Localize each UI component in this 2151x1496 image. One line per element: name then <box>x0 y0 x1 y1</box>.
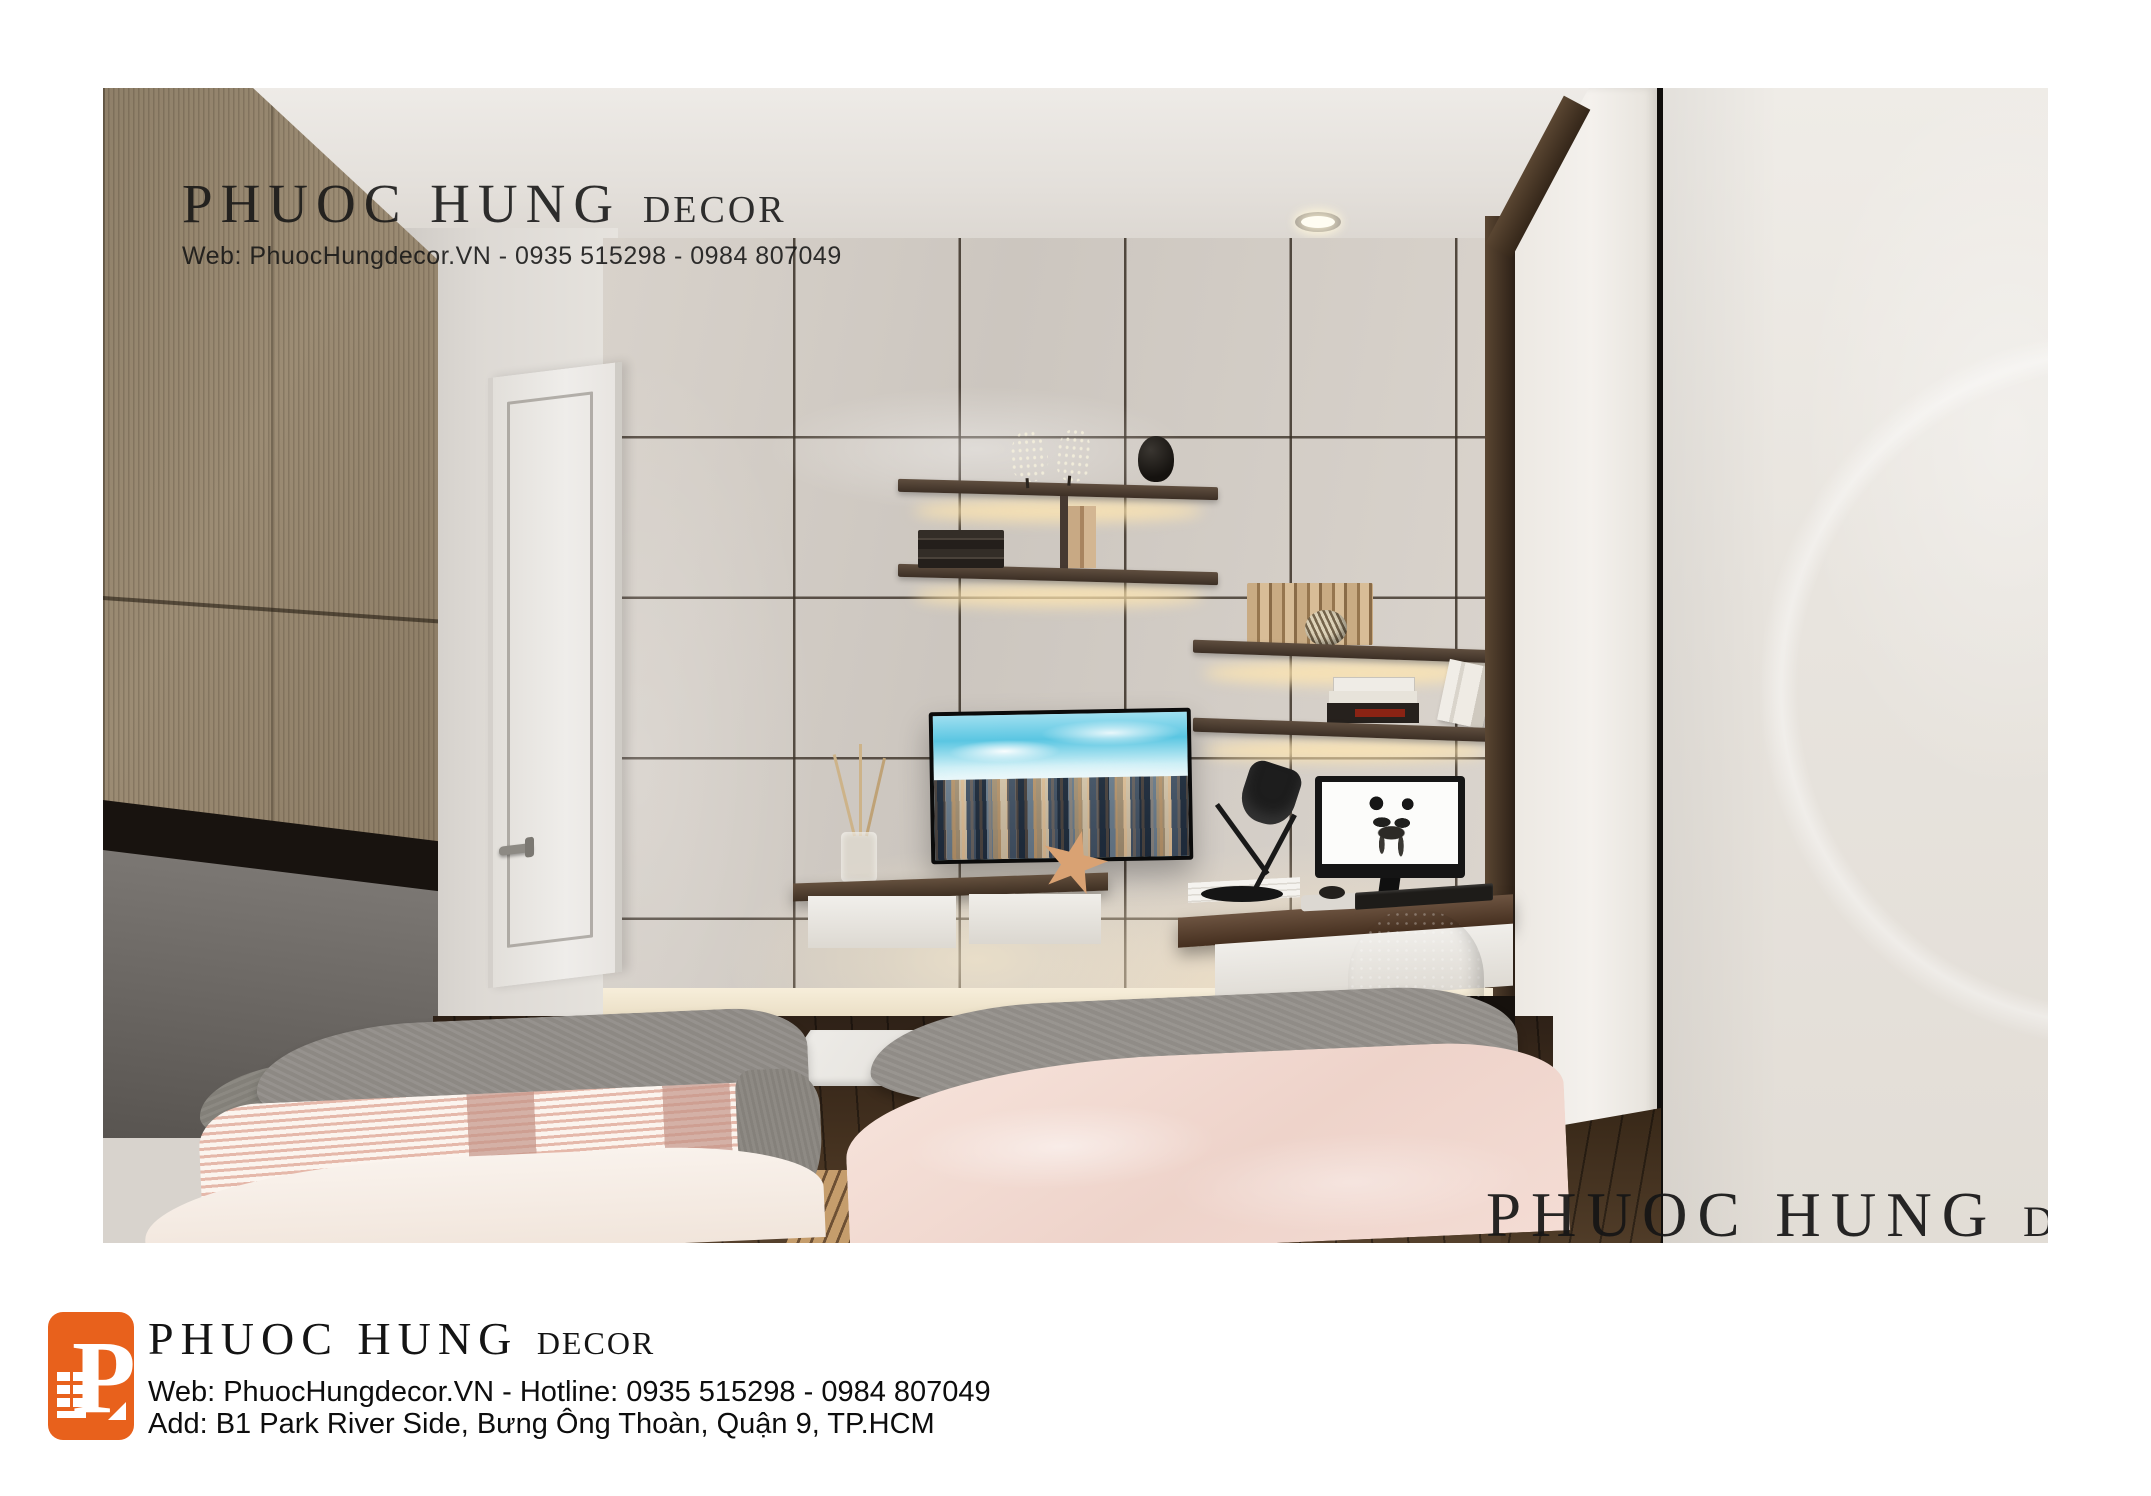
shelf-divider <box>1060 496 1068 570</box>
decor-shell-ball <box>1305 610 1347 646</box>
monitor-screen <box>1322 782 1458 864</box>
tv-screen-cityscape <box>933 712 1189 860</box>
book-spine-label <box>1355 709 1405 717</box>
tv-console-drawer <box>969 894 1101 944</box>
footer-web-line: Web: PhuocHungdecor.VN - Hotline: 0935 5… <box>148 1376 991 1408</box>
glass-vase <box>841 832 877 882</box>
watermark-brand: PHUOC HUNG DECOR <box>1486 1184 2048 1243</box>
wall-mounted-tv <box>929 708 1194 865</box>
tv-console-drawer <box>808 896 956 948</box>
door-panel-molding <box>507 391 593 948</box>
phuoc-hung-logo: P <box>48 1312 134 1440</box>
wall-shelf-unit-right <box>1193 558 1503 758</box>
footer-brand-text: PHUOC HUNG <box>148 1313 518 1364</box>
right-wardrobe-door-right <box>1663 88 2048 1243</box>
desk-lamp-base <box>1201 886 1283 902</box>
shelf-underlight <box>913 500 1203 522</box>
shelf-underlight <box>913 585 1203 607</box>
watermark-brand-text: PHUOC HUNG <box>1486 1180 1997 1243</box>
books-vertical <box>1068 506 1096 568</box>
mouse <box>1319 886 1345 899</box>
ornament-stand <box>1026 478 1030 488</box>
decor-ornament <box>1054 427 1095 484</box>
computer-monitor <box>1315 776 1465 878</box>
shelf-board <box>898 479 1218 500</box>
dried-plant <box>859 744 862 836</box>
footer-brand: PHUOC HUNG DECOR <box>148 1316 991 1362</box>
watermark-contact: Web: PhuocHungdecor.VN - 0935 515298 - 0… <box>182 242 842 271</box>
book-stack <box>918 530 1004 568</box>
book-stack <box>1327 677 1419 723</box>
white-door <box>488 362 622 988</box>
watermark-brand-text: PHUOC HUNG <box>182 173 621 234</box>
shelf-underlight <box>1203 740 1488 762</box>
watermark-brand: PHUOC HUNG DECOR <box>182 176 842 231</box>
watermark-bottom-right: PHUOC HUNG DECOR Web: PhuocHungdecor.VN … <box>1486 1184 2048 1243</box>
decor-globe <box>1138 436 1174 482</box>
logo-icon: P <box>48 1312 134 1440</box>
watermark-brand-suffix: DECOR <box>2023 1199 2048 1243</box>
recessed-ceiling-light <box>1295 212 1341 232</box>
watermark-top-left: PHUOC HUNG DECOR Web: PhuocHungdecor.VN … <box>182 176 842 271</box>
right-wardrobe <box>1511 88 2048 1243</box>
footer-address-line: Add: B1 Park River Side, Bưng Ông Thoàn,… <box>148 1408 991 1440</box>
book <box>1327 703 1419 723</box>
footer-brand-suffix: DECOR <box>537 1325 655 1361</box>
book <box>1329 691 1417 703</box>
right-bed <box>840 980 1570 1243</box>
decor-ornament <box>1008 429 1050 484</box>
watermark-brand-suffix: DECOR <box>643 189 787 231</box>
door-handle-rose <box>525 837 534 858</box>
wall-shelf-unit-center <box>898 408 1218 593</box>
footer-info: PHUOC HUNG DECOR Web: PhuocHungdecor.VN … <box>148 1316 991 1441</box>
ceiling-light-bulb <box>1301 216 1335 228</box>
tv-city-buildings <box>934 776 1189 860</box>
left-bed <box>136 1005 815 1243</box>
